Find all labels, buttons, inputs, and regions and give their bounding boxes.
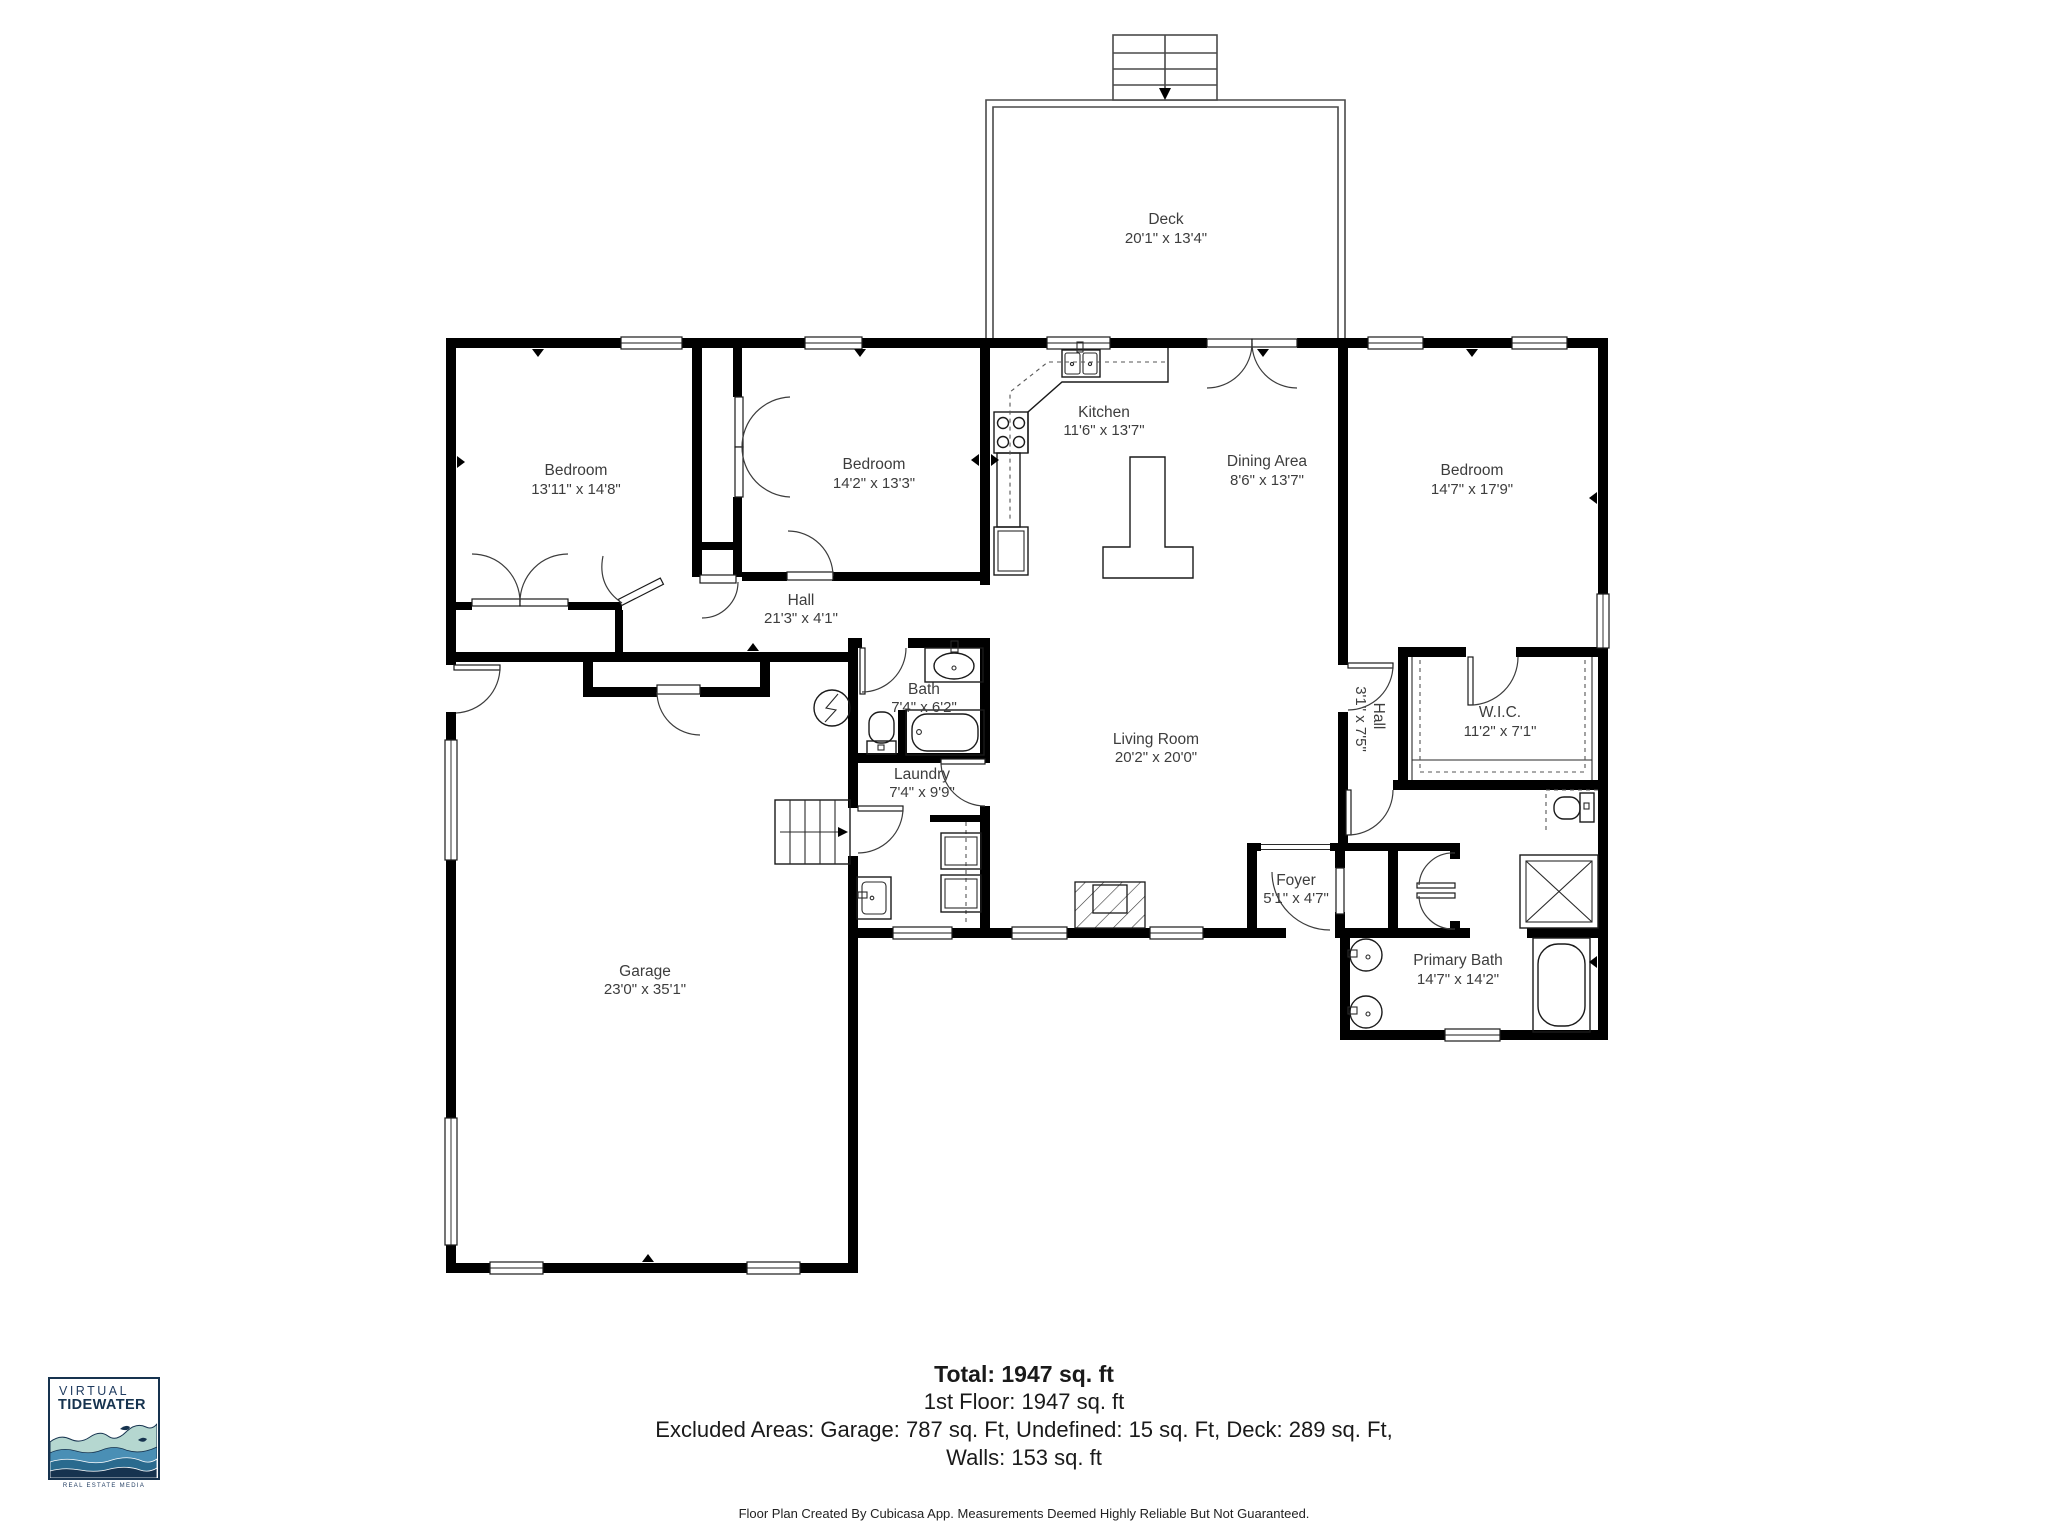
- kitchen-dims: 11'6" x 13'7": [1063, 422, 1144, 439]
- window: [445, 740, 457, 860]
- window: [1597, 594, 1609, 648]
- primary-toilet: [1546, 790, 1598, 830]
- garage-fixtures: [775, 690, 850, 864]
- laundry-label: Laundry: [894, 766, 950, 783]
- fireplace-hearth: [1075, 882, 1145, 928]
- kitchen-island: [1103, 457, 1193, 578]
- bedroom1-french-door: [472, 554, 568, 606]
- primary-hall-door: [1346, 790, 1393, 835]
- primary-shower: [1520, 855, 1598, 928]
- window: [1512, 337, 1567, 349]
- hall-closet-door: [700, 575, 738, 618]
- laundry-fixtures: [857, 822, 981, 926]
- window: [1012, 927, 1067, 939]
- bedroom3-dims: 14'7" x 17'9": [1431, 481, 1513, 498]
- deck-outline: [986, 35, 1345, 338]
- window: [747, 1262, 800, 1274]
- bath-label: Bath: [908, 681, 940, 698]
- foyer-label: Foyer: [1276, 872, 1316, 889]
- excluded-areas: Excluded Areas: Garage: 787 sq. Ft, Unde…: [0, 1416, 2048, 1444]
- hall2-label: Hall: [1370, 703, 1387, 730]
- stairs-up-arrow-icon: [838, 827, 848, 837]
- toilet: [867, 712, 896, 754]
- garage-label: Garage: [619, 963, 671, 980]
- bathtub: [906, 710, 984, 755]
- interior-walls: [456, 338, 1608, 938]
- refrigerator: [994, 527, 1028, 575]
- garage-stairs: [775, 800, 850, 864]
- window: [805, 337, 862, 349]
- living-room-label: Living Room: [1113, 731, 1199, 748]
- water-heater-icon: [814, 690, 850, 726]
- bath-door: [860, 648, 906, 694]
- bedroom3-label: Bedroom: [1441, 462, 1504, 479]
- primary-sink-1: [1348, 939, 1382, 971]
- upper-cabinets-dashed: [1010, 362, 1165, 522]
- bath-fixtures: [867, 641, 984, 755]
- logo-line2: TIDEWATER: [50, 1397, 158, 1413]
- primary-bath-fixtures: [1348, 790, 1598, 1032]
- dining-label: Dining Area: [1227, 453, 1308, 470]
- window: [1368, 337, 1423, 349]
- bedroom2-label: Bedroom: [843, 456, 906, 473]
- first-floor-area: 1st Floor: 1947 sq. ft: [0, 1388, 2048, 1416]
- logo-line1: VIRTUAL: [50, 1384, 158, 1398]
- primary-tub: [1533, 938, 1590, 1032]
- deck-dims: 20'1" x 13'4": [1125, 230, 1207, 247]
- disclaimer: Floor Plan Created By Cubicasa App. Meas…: [0, 1506, 2048, 1521]
- window: [445, 1118, 457, 1245]
- living-room-dims: 20'2" x 20'0": [1115, 749, 1197, 766]
- utility-sink: [857, 877, 891, 919]
- stove: [994, 412, 1028, 453]
- window: [1445, 1029, 1500, 1041]
- window: [621, 337, 682, 349]
- bedroom2-closet-door: [735, 397, 790, 497]
- floor-plan-page: { "floor_plan": { "rooms": { "deck": {"n…: [0, 0, 2048, 1536]
- dimension-markers: [457, 349, 1597, 1262]
- bedroom1-label: Bedroom: [545, 462, 608, 479]
- primary-closet-french-door: [1417, 853, 1455, 929]
- area-summary: Total: 1947 sq. ft 1st Floor: 1947 sq. f…: [0, 1360, 2048, 1473]
- bath-dims: 7'4" x 6'2": [891, 699, 957, 716]
- wic-label: W.I.C.: [1479, 704, 1521, 721]
- primary-sink-2: [1348, 996, 1382, 1028]
- kitchen-fixtures: [994, 342, 1193, 578]
- logo-caption: REAL ESTATE MEDIA: [48, 1483, 160, 1489]
- windows: [445, 337, 1609, 1274]
- washer: [941, 833, 981, 869]
- bedroom1-entry-door: [602, 556, 664, 606]
- hall-label: Hall: [788, 592, 815, 609]
- foyer-dims: 5'1" x 4'7": [1263, 890, 1329, 907]
- window: [1047, 337, 1110, 349]
- window: [1150, 927, 1203, 939]
- wic-door: [1468, 657, 1518, 705]
- garage-side-door: [454, 665, 500, 713]
- primary-bath-label: Primary Bath: [1413, 952, 1503, 969]
- kitchen-label: Kitchen: [1078, 404, 1130, 421]
- kitchen-cabinet: [997, 453, 1020, 527]
- logo-waves-icon: [50, 1420, 157, 1478]
- hall-dims: 21'3" x 4'1": [764, 610, 838, 627]
- bedroom2-door: [787, 531, 833, 580]
- garage-closet-door: [657, 685, 700, 735]
- total-area: Total: 1947 sq. ft: [0, 1360, 2048, 1388]
- room-labels: Deck 20'1" x 13'4" Bedroom 13'11" x 14'8…: [531, 211, 1536, 998]
- window: [893, 927, 952, 939]
- bedroom1-dims: 13'11" x 14'8": [531, 481, 621, 498]
- garage-laundry-door: [858, 806, 903, 853]
- deck-label: Deck: [1148, 211, 1184, 228]
- exterior-walls: [446, 338, 1608, 1273]
- wic-dims: 11'2" x 7'1": [1464, 723, 1537, 740]
- laundry-dims: 7'4" x 9'9": [889, 784, 955, 801]
- deck-french-door: [1207, 339, 1297, 388]
- window: [490, 1262, 543, 1274]
- hall2-dims: 3'1" x 7'5": [1352, 686, 1369, 752]
- primary-bath-dims: 14'7" x 14'2": [1417, 971, 1499, 988]
- dryer: [941, 875, 981, 912]
- bedroom2-dims: 14'2" x 13'3": [833, 475, 915, 492]
- walls-area: Walls: 153 sq. ft: [0, 1444, 2048, 1472]
- floor-plan-drawing: Deck 20'1" x 13'4" Bedroom 13'11" x 14'8…: [0, 0, 2048, 1536]
- garage-dims: 23'0" x 35'1": [604, 981, 686, 998]
- dining-dims: 8'6" x 13'7": [1230, 472, 1304, 489]
- virtual-tidewater-logo: VIRTUAL TIDEWATER: [48, 1377, 160, 1480]
